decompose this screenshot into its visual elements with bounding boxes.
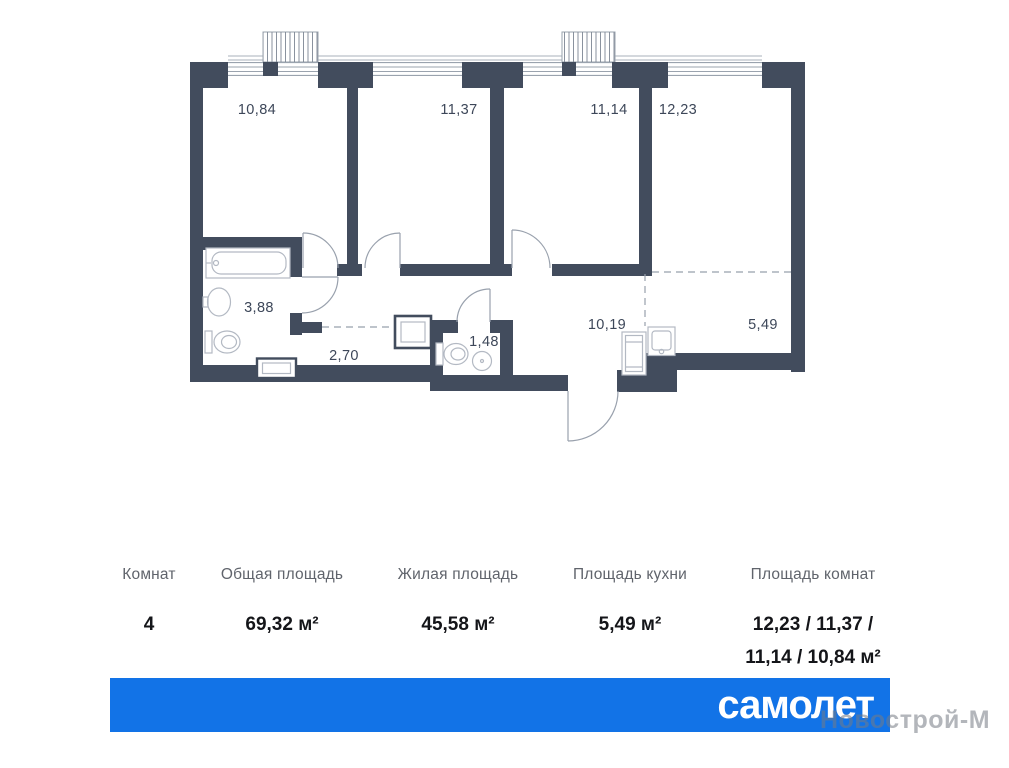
bathtub-icon [206, 248, 290, 278]
window [520, 63, 562, 76]
room-area-label-bedroom-1: 10,84 [238, 102, 276, 118]
fridge-icon [622, 332, 646, 375]
window [373, 63, 462, 76]
room-area-label-hallway: 10,19 [588, 317, 626, 333]
room-area-label-wc: 1,48 [469, 334, 499, 350]
floorplan-card: 10,84 11,37 11,14 12,23 3,88 2,70 1,48 1… [0, 0, 1009, 768]
washer-icon [395, 316, 431, 348]
column-value: 4 [112, 608, 186, 641]
window [576, 63, 612, 76]
room-area-label-bathroom: 3,88 [244, 300, 274, 316]
summary-column-total-area: Общая площадь 69,32 м² [207, 566, 357, 641]
column-value: 69,32 м² [207, 608, 357, 641]
room-area-label-bedroom-3: 11,14 [590, 102, 627, 118]
bathroom-sink-icon [203, 288, 231, 316]
room-area-label-corridor: 2,70 [329, 348, 359, 364]
column-value-line2: 11,14 / 10,84 м² [723, 641, 903, 674]
kitchen-sink-icon [648, 327, 675, 356]
watermark: Новострой-М [820, 706, 990, 735]
column-value: 5,49 м² [555, 608, 705, 641]
balcony-basket-icon [263, 32, 615, 62]
door-bedroom-3 [512, 230, 550, 268]
summary-column-living-area: Жилая площадь 45,58 м² [383, 566, 533, 641]
vent-shaft-icon [257, 359, 296, 379]
summary-column-rooms: Комнат 4 [112, 566, 186, 641]
summary-column-room-areas: Площадь комнат 12,23 / 11,37 / 11,14 / 1… [723, 566, 903, 674]
column-header: Общая площадь [207, 566, 357, 584]
brand-banner: самолет [110, 678, 890, 732]
column-header: Площадь кухни [555, 566, 705, 584]
column-header: Комнат [112, 566, 186, 584]
door-bedroom-2 [365, 233, 400, 268]
window [278, 63, 318, 76]
dashed-zone-lines [322, 272, 791, 327]
floor-plan: 10,84 11,37 11,14 12,23 3,88 2,70 1,48 1… [0, 0, 1009, 540]
wc-toilet-icon [436, 343, 468, 365]
column-header: Жилая площадь [383, 566, 533, 584]
door-wc [457, 289, 490, 322]
column-header: Площадь комнат [723, 566, 903, 584]
door-entrance [568, 391, 618, 441]
summary-column-kitchen-area: Площадь кухни 5,49 м² [555, 566, 705, 641]
column-value: 45,58 м² [383, 608, 533, 641]
bathroom-toilet-icon [205, 331, 240, 353]
door-bathroom [302, 277, 338, 313]
room-area-label-kitchen: 5,49 [748, 317, 778, 333]
column-value-line1: 12,23 / 11,37 / [723, 608, 903, 641]
wc-sink-icon [473, 352, 492, 371]
window [668, 63, 762, 76]
window [228, 63, 263, 76]
door-bedroom-1 [303, 233, 338, 268]
room-area-label-bedroom-2: 11,37 [440, 102, 477, 118]
room-area-label-living-room: 12,23 [659, 102, 697, 118]
column-value: 12,23 / 11,37 / 11,14 / 10,84 м² [723, 608, 903, 674]
